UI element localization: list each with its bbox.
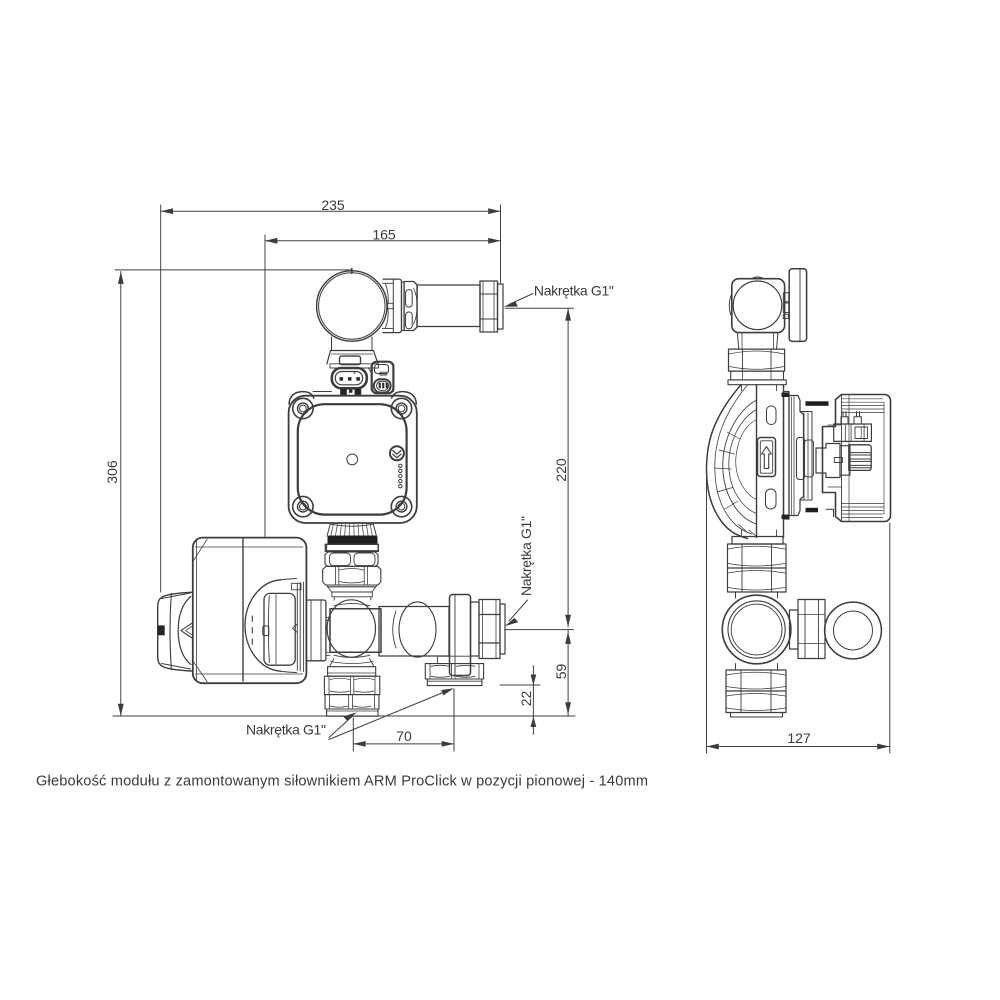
svg-text:220: 220 <box>553 458 569 482</box>
svg-text:Nakrętka G1": Nakrętka G1" <box>246 722 326 738</box>
svg-text:165: 165 <box>372 227 396 243</box>
svg-text:Nakrętka G1": Nakrętka G1" <box>534 282 614 298</box>
svg-text:127: 127 <box>787 730 811 746</box>
svg-text:235: 235 <box>321 197 345 213</box>
svg-text:306: 306 <box>104 460 120 484</box>
svg-text:59: 59 <box>553 664 569 680</box>
svg-text:Nakrętka G1": Nakrętka G1" <box>518 516 534 596</box>
svg-text:70: 70 <box>396 728 412 744</box>
svg-text:22: 22 <box>518 691 534 707</box>
svg-text:Głebokość modułu z zamontowany: Głebokość modułu z zamontowanym siłownik… <box>36 773 648 789</box>
